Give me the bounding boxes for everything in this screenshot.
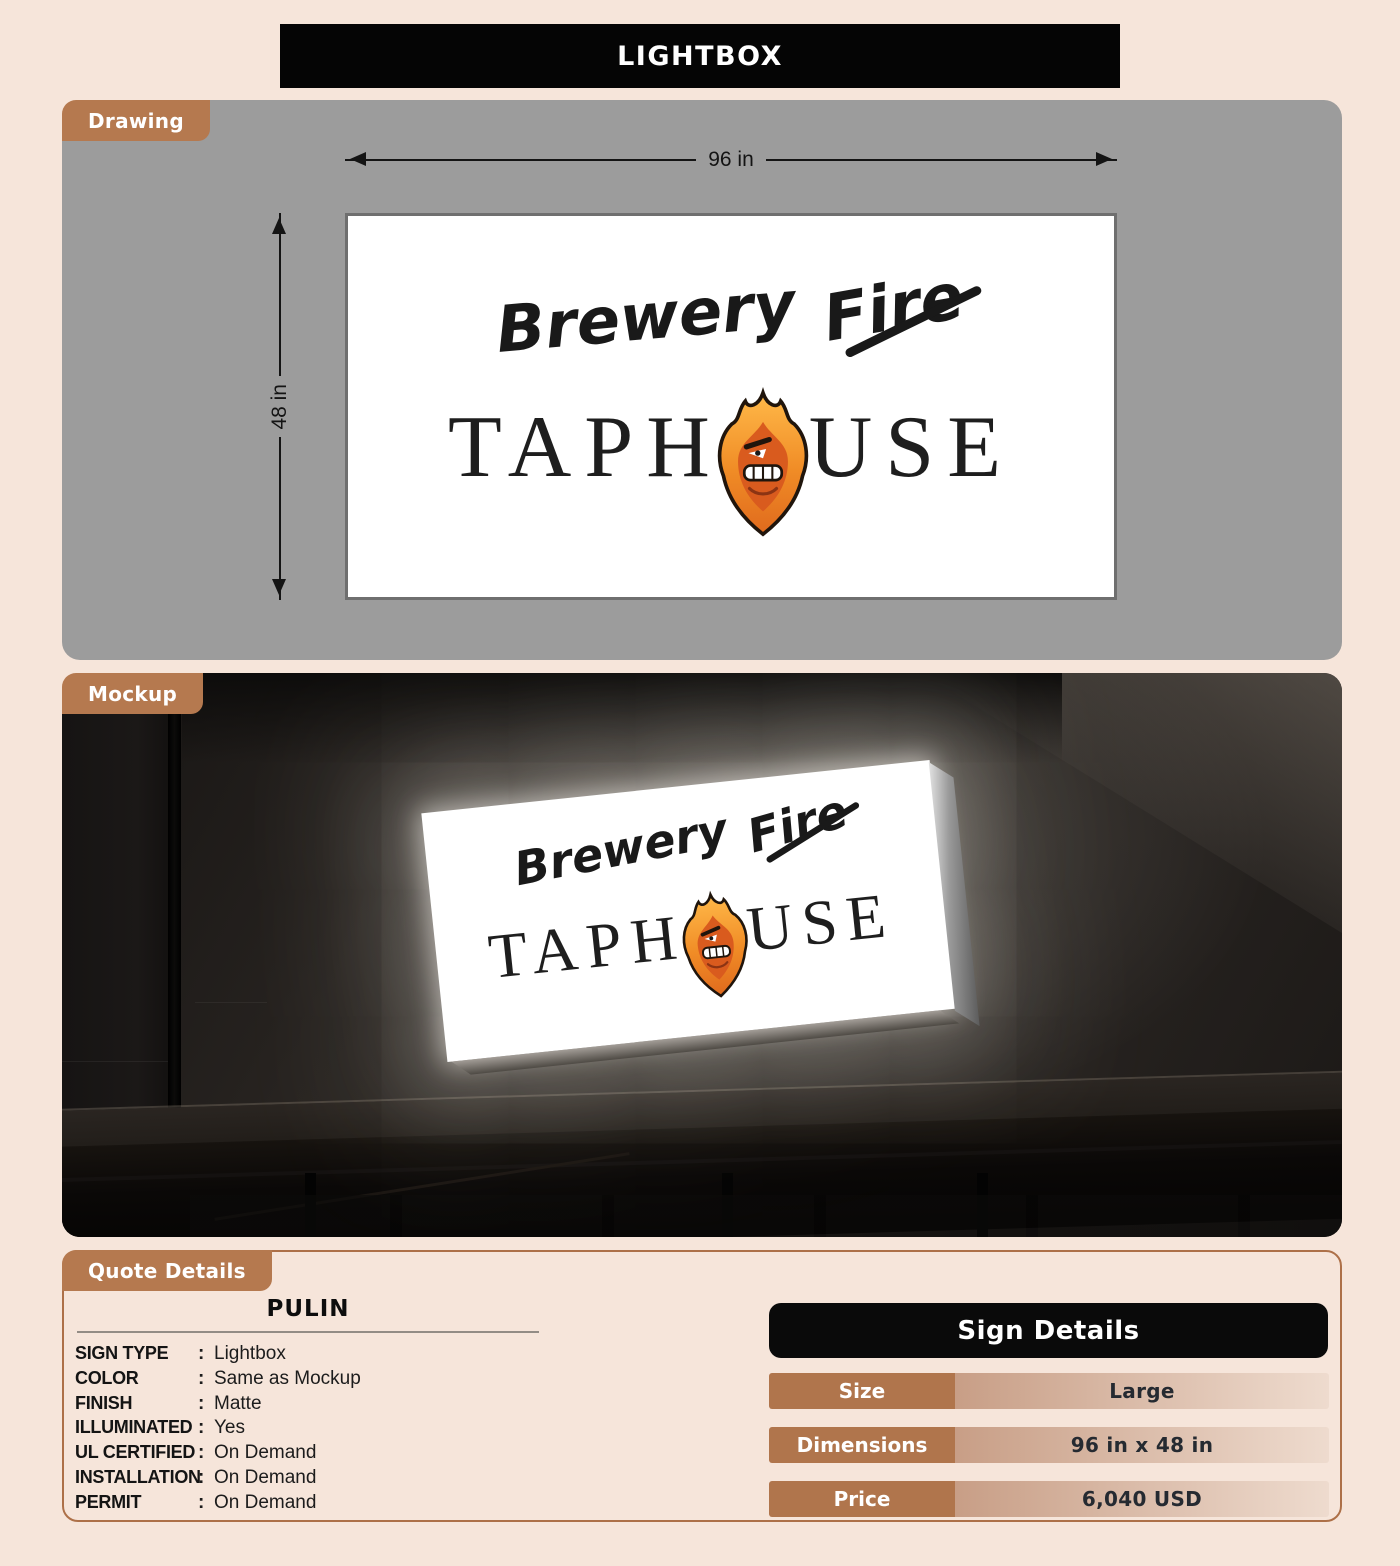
field-value: On Demand bbox=[214, 1467, 316, 1489]
quote-fields-list: SIGN TYPE : Lightbox COLOR : Same as Moc… bbox=[75, 1343, 675, 1517]
sign-details-header: Sign Details bbox=[769, 1303, 1328, 1358]
quote-field-row: SIGN TYPE : Lightbox bbox=[75, 1343, 675, 1368]
field-colon: : bbox=[198, 1417, 214, 1439]
field-label: COLOR bbox=[75, 1368, 198, 1389]
brand-logo: Brewery Fire TAPH USE bbox=[448, 283, 1014, 540]
size-value: Large bbox=[955, 1373, 1329, 1409]
field-colon: : bbox=[198, 1393, 214, 1415]
quote-field-row: FINISH : Matte bbox=[75, 1393, 675, 1418]
quote-field-row: COLOR : Same as Mockup bbox=[75, 1368, 675, 1393]
width-dimension-label: 96 in bbox=[696, 148, 766, 172]
wall-panel-seam bbox=[195, 1002, 267, 1003]
drawing-panel: 96 in 48 in Brewery Fire TAPH USE bbox=[62, 100, 1342, 660]
field-colon: : bbox=[198, 1368, 214, 1390]
dimensions-label: Dimensions bbox=[769, 1427, 955, 1463]
field-value: Same as Mockup bbox=[214, 1368, 361, 1390]
storefront-glass bbox=[190, 1195, 1342, 1237]
page-title: LIGHTBOX bbox=[617, 41, 783, 72]
quote-field-row: PERMIT : On Demand bbox=[75, 1492, 675, 1517]
field-label: SIGN TYPE bbox=[75, 1343, 198, 1364]
field-value: Matte bbox=[214, 1393, 262, 1415]
quote-field-row: ILLUMINATED : Yes bbox=[75, 1417, 675, 1442]
field-colon: : bbox=[198, 1492, 214, 1514]
logo-taphouse-right: USE bbox=[744, 884, 898, 962]
field-label: ILLUMINATED bbox=[75, 1417, 198, 1438]
quote-field-row: UL CERTIFIED : On Demand bbox=[75, 1442, 675, 1467]
sign-artwork: Brewery Fire TAPH USE bbox=[345, 213, 1117, 600]
field-colon: : bbox=[198, 1442, 214, 1464]
arrow-up-icon bbox=[279, 213, 281, 376]
price-label: Price bbox=[769, 1481, 955, 1517]
logo-word-fire: Fire bbox=[742, 786, 853, 863]
field-label: PERMIT bbox=[75, 1492, 198, 1513]
quote-details-tab-label: Quote Details bbox=[88, 1259, 246, 1283]
dimensions-value: 96 in x 48 in bbox=[955, 1427, 1329, 1463]
field-label: UL CERTIFIED bbox=[75, 1442, 198, 1463]
table-row: Price 6,040 USD bbox=[769, 1481, 1329, 1517]
size-label: Size bbox=[769, 1373, 955, 1409]
wall-panel-seam bbox=[62, 1061, 170, 1062]
quote-sheet-page: LIGHTBOX 96 in 48 in Brewery Fire TAPH bbox=[0, 0, 1400, 1566]
arrow-left-icon bbox=[345, 159, 696, 161]
brand-logo: Brewery Fire TAPH USE bbox=[476, 798, 901, 1025]
height-dimension-label: 48 in bbox=[268, 376, 292, 438]
logo-script-line: Brewery Fire bbox=[496, 283, 966, 353]
field-value: On Demand bbox=[214, 1492, 316, 1514]
width-dimension-arrow: 96 in bbox=[345, 147, 1117, 173]
field-value: Yes bbox=[214, 1417, 245, 1439]
logo-taphouse-left: TAPH bbox=[448, 404, 723, 492]
arrow-down-icon bbox=[279, 437, 281, 600]
table-row: Dimensions 96 in x 48 in bbox=[769, 1427, 1329, 1463]
drawing-tab: Drawing bbox=[62, 100, 210, 141]
dragon-flame-icon bbox=[711, 371, 815, 556]
logo-taphouse-left: TAPH bbox=[485, 906, 688, 990]
dragon-flame-icon bbox=[671, 876, 759, 1016]
field-value: Lightbox bbox=[214, 1343, 286, 1365]
logo-taphouse-line: TAPH USE bbox=[448, 355, 1014, 540]
drawing-tab-label: Drawing bbox=[88, 109, 184, 133]
table-row: Size Large bbox=[769, 1373, 1329, 1409]
mockup-panel: Brewery Fire TAPH USE bbox=[62, 673, 1342, 1237]
divider bbox=[77, 1331, 539, 1333]
sign-details-title: Sign Details bbox=[957, 1316, 1139, 1346]
wall-top-shadow bbox=[182, 673, 1062, 763]
page-title-bar: LIGHTBOX bbox=[280, 24, 1120, 88]
quote-details-tab: Quote Details bbox=[62, 1250, 272, 1291]
field-colon: : bbox=[198, 1467, 214, 1489]
field-label: INSTALLATION bbox=[75, 1467, 198, 1488]
field-colon: : bbox=[198, 1343, 214, 1365]
arrow-right-icon bbox=[766, 159, 1117, 161]
mockup-tab-label: Mockup bbox=[88, 682, 177, 706]
mockup-tab: Mockup bbox=[62, 673, 203, 714]
logo-word-brewery: Brewery bbox=[493, 270, 798, 366]
height-dimension-arrow: 48 in bbox=[267, 213, 293, 600]
price-value: 6,040 USD bbox=[955, 1481, 1329, 1517]
field-value: On Demand bbox=[214, 1442, 316, 1464]
lightbox-sign-mockup: Brewery Fire TAPH USE bbox=[421, 760, 955, 1062]
customer-name: PULIN bbox=[77, 1296, 539, 1322]
logo-taphouse-right: USE bbox=[809, 404, 1014, 492]
quote-field-row: INSTALLATION : On Demand bbox=[75, 1467, 675, 1492]
field-label: FINISH bbox=[75, 1393, 198, 1414]
